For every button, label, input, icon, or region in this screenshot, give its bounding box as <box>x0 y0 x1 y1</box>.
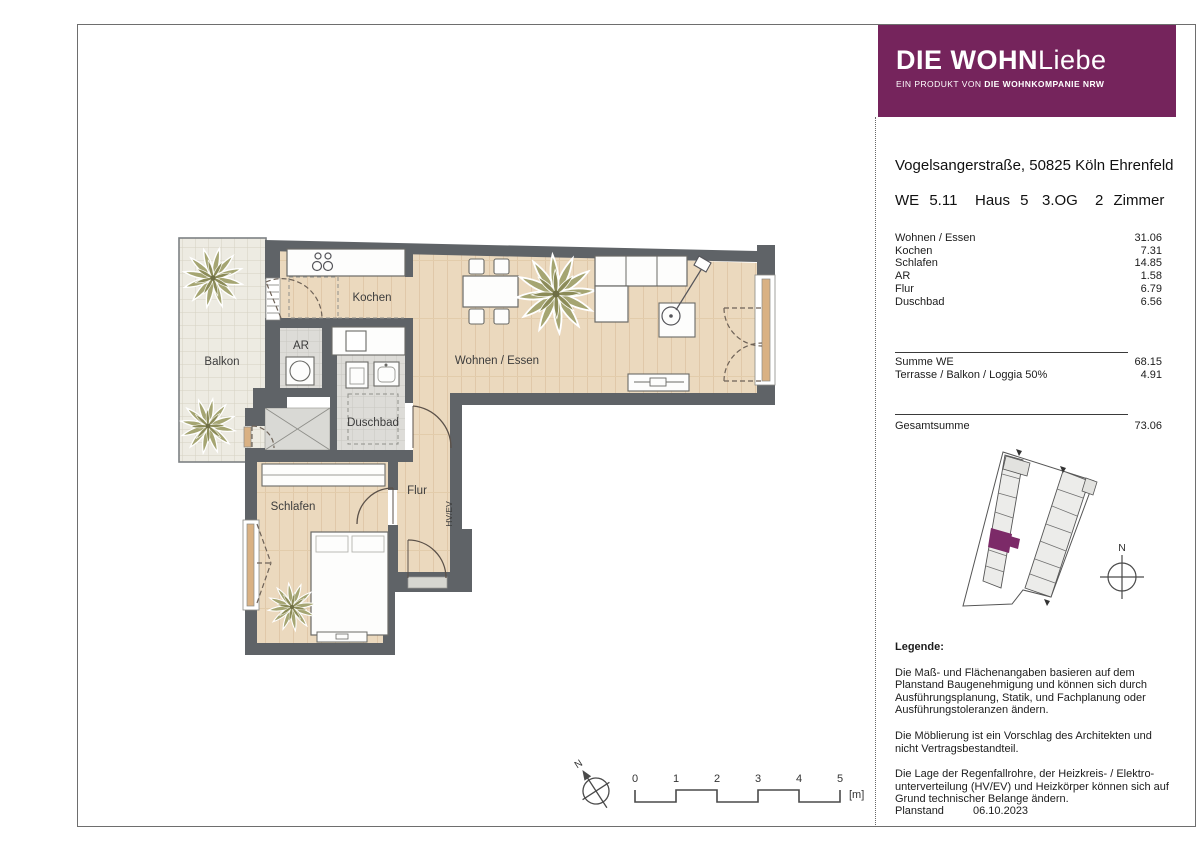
scale-bar: 0 1 2 3 4 5 [m] <box>632 773 864 802</box>
table-row: Kochen7.31 <box>895 245 1162 258</box>
legend-paragraph: Die Maß- und Flächenangaben basieren auf… <box>895 667 1173 717</box>
scale-tick-0: 0 <box>632 773 638 785</box>
scale-tick-3: 3 <box>755 773 761 785</box>
area-table: Wohnen / Essen31.06 Kochen7.31 Schlafen1… <box>895 232 1162 308</box>
legend-block: Legende: Die Maß- und Flächenangaben bas… <box>895 641 1173 819</box>
scale-unit: [m] <box>849 789 864 801</box>
bedroom-window <box>243 520 259 610</box>
sum-rows: Summe WE68.15 Terrasse / Balkon / Loggia… <box>895 356 1162 382</box>
wardrobe <box>262 464 385 486</box>
table-row: Summe WE68.15 <box>895 356 1162 369</box>
toilet <box>374 362 399 386</box>
washing-machine <box>286 357 314 385</box>
label-kochen: Kochen <box>352 292 391 304</box>
address-line: Vogelsangerstraße, 50825 Köln Ehrenfeld <box>895 157 1174 174</box>
tv-lowboard <box>628 374 689 391</box>
total-row: Gesamtsumme73.06 <box>895 420 1162 432</box>
floor-label: 3.OG <box>1042 192 1078 209</box>
divider-line <box>895 352 1128 353</box>
logo-box: DIE WOHNLiebe EIN PRODUKT VON DIE WOHNKO… <box>878 25 1176 117</box>
north-letter: N <box>1118 542 1126 554</box>
bedroom-lowboard <box>317 632 367 642</box>
planstand-row: Planstand 06.10.2023 <box>895 805 1028 817</box>
table-row: Schlafen14.85 <box>895 257 1162 270</box>
label-flur: Flur <box>407 485 427 497</box>
house-number: Haus 5 <box>975 192 1029 209</box>
label-balkon: Balkon <box>204 356 239 368</box>
brand-bold: DIE WOHN <box>896 45 1038 75</box>
room-count: 2 Zimmer <box>1095 192 1164 209</box>
vestibule-door-threshold <box>244 427 251 447</box>
table-row: Flur6.79 <box>895 283 1162 296</box>
brand-tagline: EIN PRODUKT VON DIE WOHNKOMPANIE NRW <box>896 79 1176 89</box>
table-row: Wohnen / Essen31.06 <box>895 232 1162 245</box>
entrance-threshold <box>408 577 447 588</box>
table-row: Terrasse / Balkon / Loggia 50%4.91 <box>895 369 1162 382</box>
label-schlafen: Schlafen <box>271 501 316 513</box>
bed <box>311 532 388 635</box>
living-french-window <box>755 275 775 385</box>
legend-paragraph: Die Lage der Regenfallrohre, der Heizkre… <box>895 768 1173 806</box>
unit-number: WE 5.11 <box>895 192 957 209</box>
label-hvev: HV/EV <box>444 501 454 527</box>
scale-tick-5: 5 <box>837 773 843 785</box>
label-duschbad: Duschbad <box>347 417 399 429</box>
label-ar: AR <box>293 340 309 352</box>
legend-title: Legende: <box>895 641 1173 654</box>
scale-tick-2: 2 <box>714 773 720 785</box>
sidebar-north-compass-icon: N <box>1100 542 1144 599</box>
brand-light: Liebe <box>1038 45 1107 75</box>
legend-paragraph: Die Möblierung ist ein Vorschlag des Arc… <box>895 730 1173 755</box>
table-row: Duschbad6.56 <box>895 296 1162 309</box>
scale-tick-4: 4 <box>796 773 802 785</box>
shaft-box <box>332 327 405 355</box>
scale-tick-1: 1 <box>673 773 679 785</box>
brand-logo: DIE WOHNLiebe <box>896 47 1176 74</box>
planstand-label: Planstand <box>895 805 944 817</box>
entry-vestibule <box>265 408 330 450</box>
north-compass-icon: N <box>562 751 620 816</box>
north-letter: N <box>573 758 585 771</box>
kitchen-counter <box>287 249 405 276</box>
planstand-date: 06.10.2023 <box>973 805 1028 817</box>
divider-line <box>895 414 1128 415</box>
site-key-map <box>963 449 1097 606</box>
table-row: AR1.58 <box>895 270 1162 283</box>
label-wohnen-essen: Wohnen / Essen <box>455 355 539 367</box>
